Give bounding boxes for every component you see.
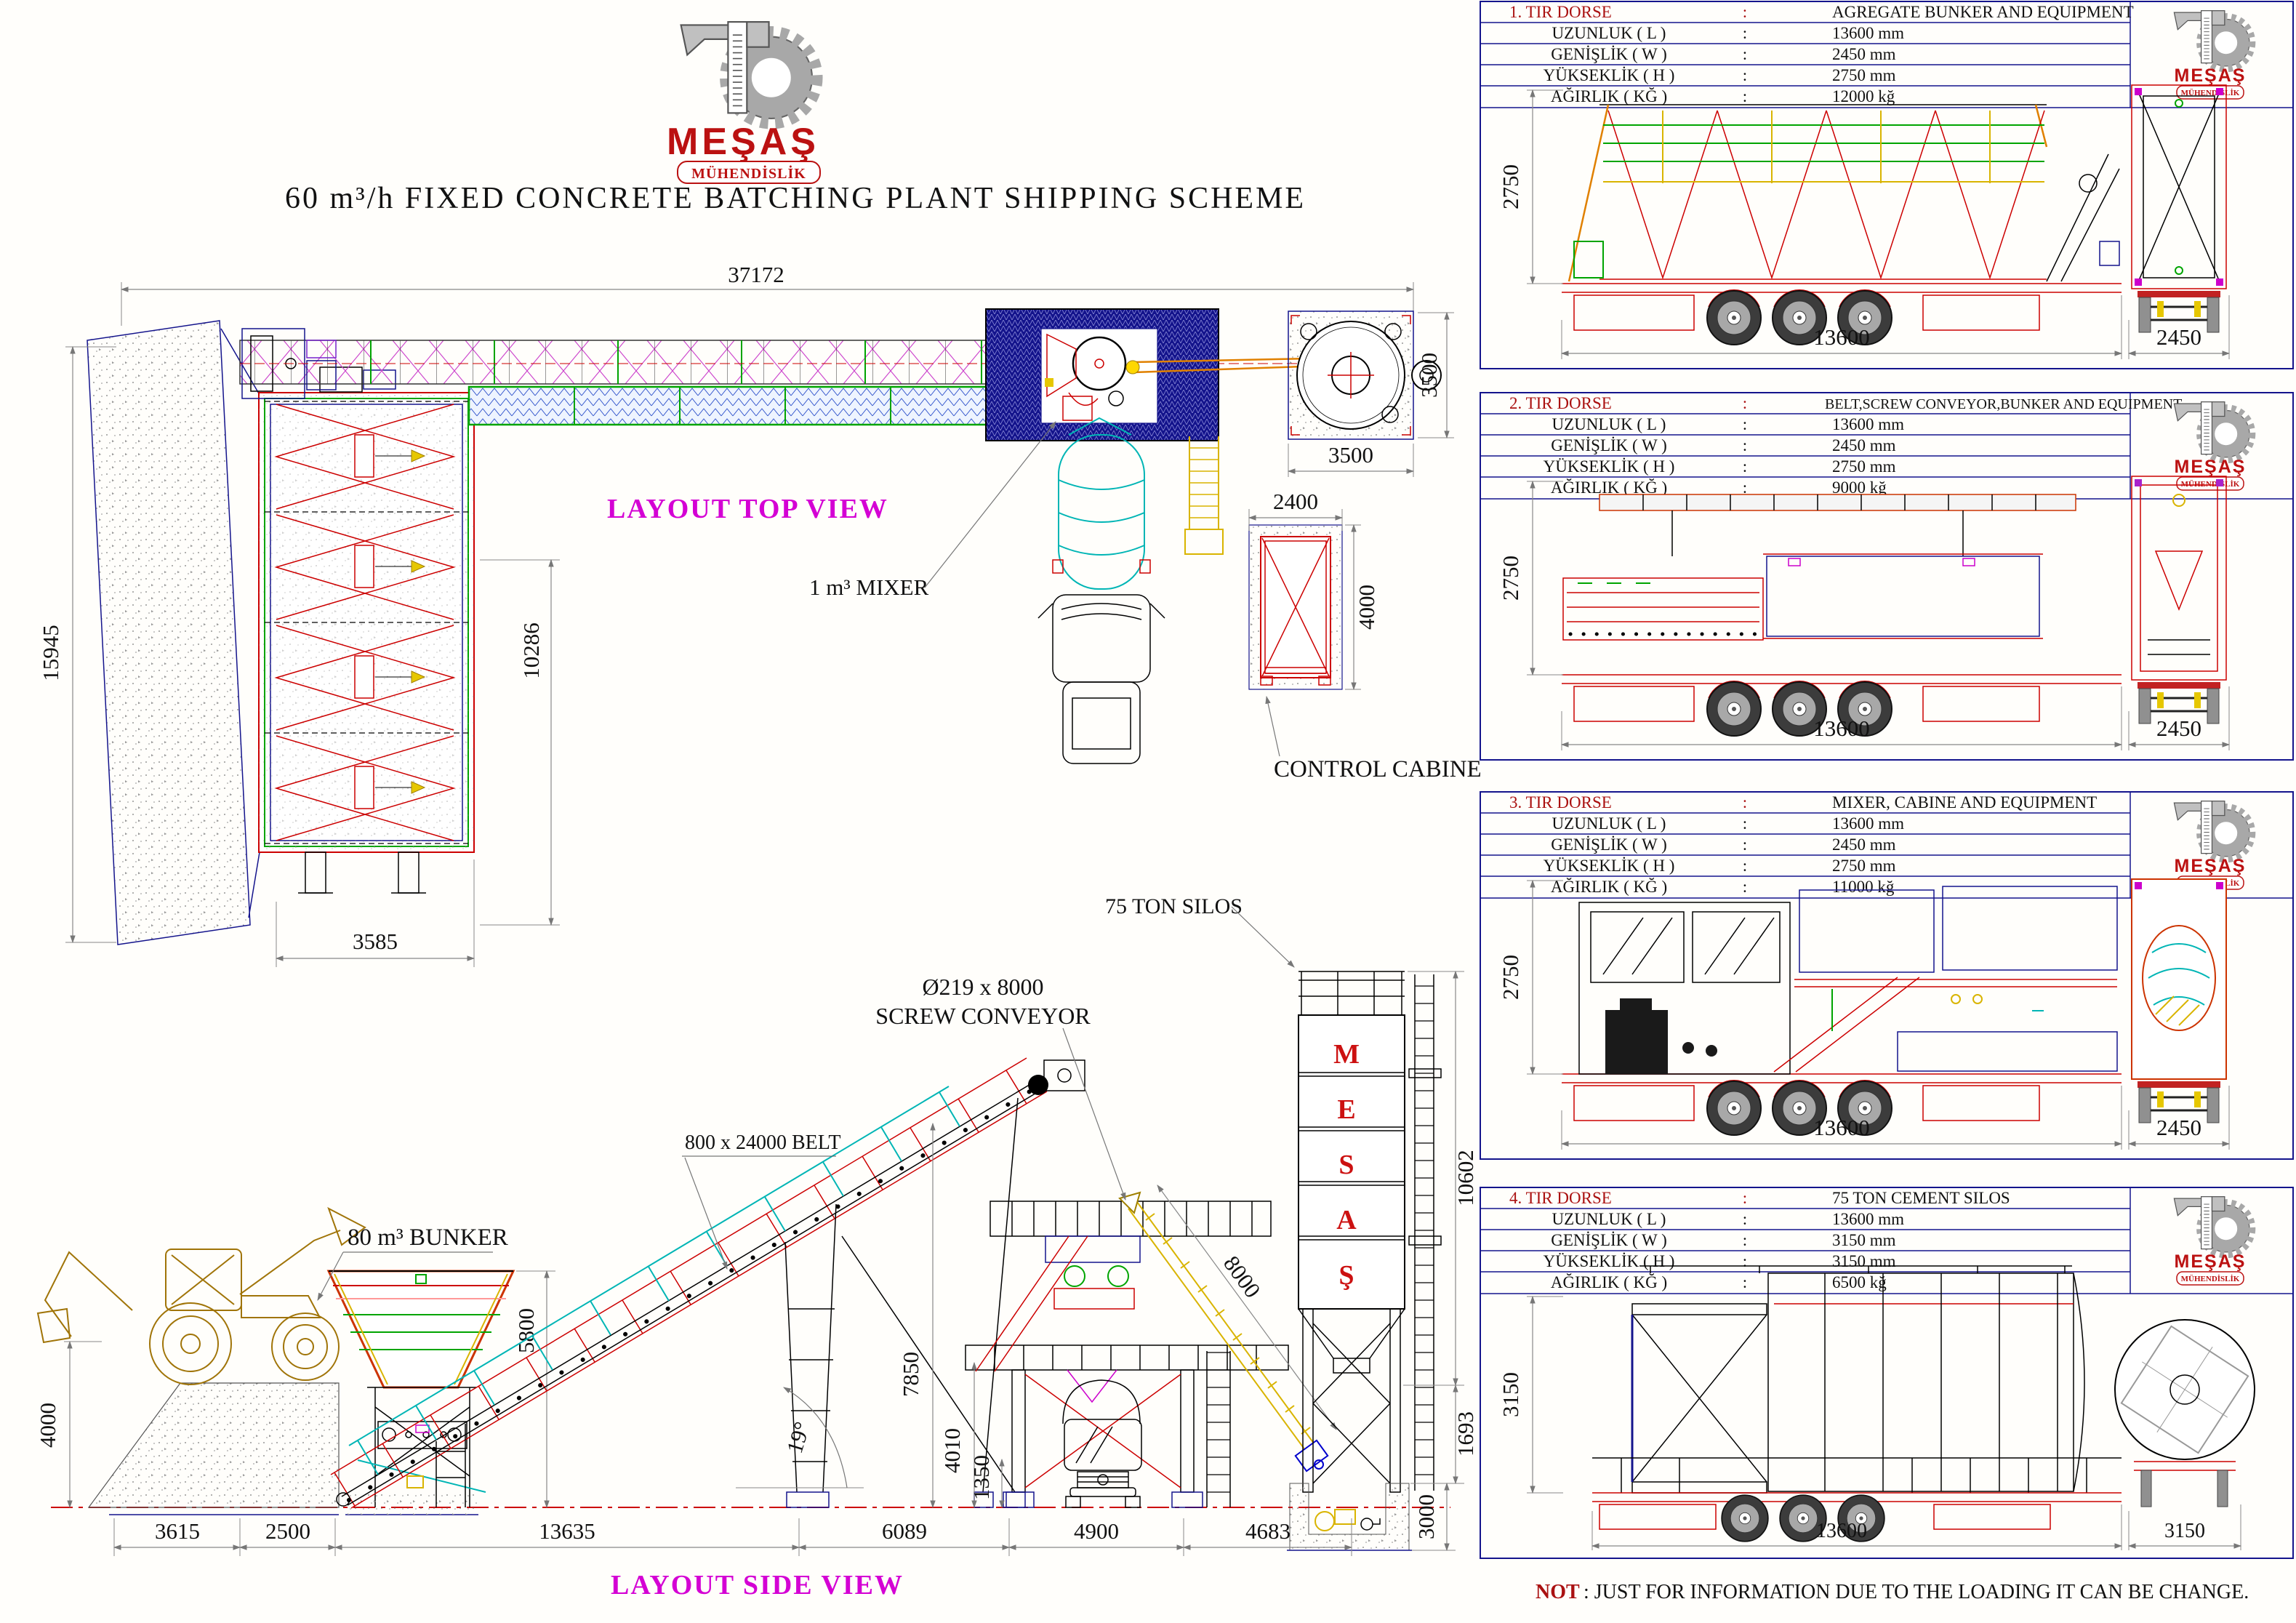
brand-subtitle: MÜHENDİSLİK	[691, 164, 806, 182]
dim-footing-height: 1350	[968, 1455, 994, 1500]
row-value: 2450 mm	[1832, 436, 1896, 454]
colon: :	[1743, 1189, 1747, 1207]
top-view-label: LAYOUT TOP VIEW	[607, 494, 888, 524]
truck3-dim-length: 13600	[1813, 1115, 1870, 1140]
row-label: GENİŞLİK ( W )	[1551, 1231, 1666, 1249]
truck2-cargo: BELT,SCREW CONVEYOR,BUNKER AND EQUIPMENT	[1825, 396, 2182, 412]
truck1-dim-height: 2750	[1498, 164, 1523, 209]
brand-name: MEŞAŞ	[2175, 856, 2247, 876]
truck2-no: 2. TIR DORSE	[1509, 394, 1612, 412]
dim-belt-angle: 19°	[782, 1419, 815, 1456]
truck1-cargo: AGREGATE BUNKER AND EQUIPMENT	[1832, 3, 2134, 21]
colon: :	[1743, 1231, 1747, 1249]
colon: :	[1743, 857, 1747, 875]
truck1-dim-width: 2450	[2156, 324, 2201, 350]
dim-silo-span: 4683	[1245, 1518, 1291, 1544]
silo-letter-s: S	[1338, 1150, 1354, 1180]
truck4-no: 4. TIR DORSE	[1509, 1189, 1612, 1207]
dim-cabine-depth: 4000	[1354, 585, 1379, 630]
dim-platform-height: 7850	[898, 1352, 923, 1397]
colon: :	[1743, 1273, 1747, 1291]
colon: :	[1743, 3, 1747, 21]
row-label: GENİŞLİK ( W )	[1551, 45, 1666, 63]
truck3-dim-height: 2750	[1498, 955, 1523, 1000]
dim-silo-side: 3500	[1416, 353, 1442, 398]
footer-note: NOT : JUST FOR INFORMATION DUE TO THE LO…	[1536, 1581, 2249, 1603]
row-label: YÜKSEKLİK ( H )	[1544, 66, 1675, 84]
dim-foundation-depth: 3000	[1413, 1494, 1439, 1539]
screw-label-line2: SCREW CONVEYOR	[875, 1003, 1091, 1029]
dim-screw-length: 8000	[1219, 1251, 1266, 1302]
truck-panel-3: 3. TIR DORSE : MIXER, CABINE AND EQUIPME…	[1480, 792, 2293, 1159]
bunker-label: 80 m³ BUNKER	[348, 1225, 508, 1251]
mixer-platform-plan	[986, 309, 1219, 441]
belt-label: 800 x 24000 BELT	[685, 1131, 840, 1154]
aggregate-bunker-plan	[259, 367, 474, 893]
header: MEŞAŞ MÜHENDİSLİK 60 m³/h FIXED CONCRETE…	[285, 22, 1306, 215]
truck1-no: 1. TIR DORSE	[1509, 3, 1612, 21]
truck4-cargo: 75 TON CEMENT SILOS	[1832, 1189, 2010, 1207]
truck2-dim-height: 2750	[1498, 556, 1523, 601]
brand-name: MEŞAŞ	[2175, 457, 2247, 477]
dim-truck-clearance: 4010	[939, 1428, 965, 1473]
truck2-dim-width: 2450	[2156, 716, 2201, 741]
page-title: 60 m³/h FIXED CONCRETE BATCHING PLANT SH…	[285, 182, 1306, 215]
side-view-label: LAYOUT SIDE VIEW	[611, 1570, 904, 1600]
dim-silo-cone: 1693	[1453, 1411, 1478, 1456]
walkway-plan	[469, 387, 987, 425]
row-label: UZUNLUK ( L )	[1552, 24, 1666, 42]
row-label: AĞIRLIK ( KĞ )	[1551, 1273, 1667, 1291]
colon: :	[1743, 814, 1747, 833]
note-text: : JUST FOR INFORMATION DUE TO THE LOADIN…	[1583, 1581, 2249, 1603]
dim-bunker-height: 5800	[513, 1308, 539, 1353]
row-value: 13600 mm	[1832, 24, 1904, 42]
drawing-sheet: MEŞAŞ MÜHENDİSLİK 60 m³/h FIXED CONCRETE…	[0, 0, 2296, 1623]
retaining-wall	[87, 321, 250, 945]
dim-bunker-width: 3585	[353, 929, 398, 954]
control-cabine-label: CONTROL CABINE	[1274, 756, 1482, 782]
row-label: UZUNLUK ( L )	[1552, 415, 1666, 433]
row-value: 12000 kğ	[1832, 87, 1895, 105]
row-label: GENİŞLİK ( W )	[1551, 835, 1666, 854]
row-value: 2750 mm	[1832, 857, 1896, 875]
truck3-dim-width: 2450	[2156, 1115, 2201, 1140]
row-value: 2750 mm	[1832, 457, 1896, 476]
truck-panel-4: 4. TIR DORSE : 75 TON CEMENT SILOS UZUNL…	[1480, 1187, 2293, 1558]
dim-leg-span: 4900	[1074, 1518, 1119, 1544]
truck3-no: 3. TIR DORSE	[1509, 793, 1612, 811]
colon: :	[1743, 436, 1747, 454]
mixer-truck-plan	[1038, 418, 1165, 764]
row-value: 3150 mm	[1832, 1231, 1896, 1249]
dim-belt-span: 13635	[539, 1518, 595, 1544]
row-value: 11000 kğ	[1832, 878, 1895, 896]
mixer-plant-side	[966, 1201, 1288, 1507]
silo-letter-e: E	[1337, 1094, 1355, 1125]
row-value: 13600 mm	[1832, 1210, 1904, 1228]
colon: :	[1743, 66, 1747, 84]
truck4-dim-width: 3150	[2164, 1520, 2205, 1542]
colon: :	[1743, 45, 1747, 63]
silos-label: 75 TON SILOS	[1105, 894, 1243, 918]
colon: :	[1743, 394, 1747, 412]
brand-subtitle: MÜHENDİSLİK	[2181, 479, 2240, 489]
dim-bunker-length: 10286	[518, 622, 544, 679]
note-prefix: NOT	[1536, 1581, 1580, 1603]
row-label: YÜKSEKLİK ( H )	[1544, 457, 1675, 476]
row-value: 2450 mm	[1832, 45, 1896, 63]
truck2-dim-length: 13600	[1813, 716, 1870, 741]
row-value: 13600 mm	[1832, 814, 1904, 833]
dim-cabine-width: 2400	[1273, 489, 1318, 514]
row-value: 6500 kğ	[1832, 1273, 1887, 1291]
dim-silo-front: 3500	[1328, 442, 1373, 468]
truck4-drawing: 3150 13600 3150	[1498, 1266, 2255, 1550]
backhoe-loader	[38, 1209, 365, 1384]
mixer-label: 1 m³ MIXER	[809, 574, 929, 600]
mesas-logo-small: MEŞAŞ MÜHENDİSLİK	[2174, 1197, 2252, 1285]
brand-name: MEŞAŞ	[667, 121, 819, 163]
truck2-drawing: 2750 13600 2450	[1498, 476, 2229, 750]
mesas-logo-icon	[681, 22, 817, 123]
mesas-logo-small: MEŞAŞ MÜHENDİSLİK	[2174, 11, 2252, 99]
mesas-logo-small: MEŞAŞ MÜHENDİSLİK	[2174, 402, 2252, 490]
truck1-drawing: 2750 13600 2450	[1498, 85, 2229, 359]
access-ladder-plan	[1185, 436, 1223, 554]
row-value: 3150 mm	[1832, 1252, 1896, 1270]
layout-top-view: 37172 15945 10286	[38, 262, 1482, 967]
truck3-drawing: 2750 13600 2450	[1498, 879, 2229, 1150]
row-label: YÜKSEKLİK ( H )	[1544, 857, 1675, 875]
row-label: UZUNLUK ( L )	[1552, 814, 1666, 833]
colon: :	[1743, 1210, 1747, 1228]
dim-total-width: 37172	[728, 262, 784, 287]
colon: :	[1743, 24, 1747, 42]
silo-letter-m: M	[1333, 1039, 1360, 1070]
row-label: UZUNLUK ( L )	[1552, 1210, 1666, 1228]
mesas-logo-small: MEŞAŞ MÜHENDİSLİK	[2174, 801, 2252, 889]
row-label: AĞIRLIK ( KĞ )	[1551, 878, 1667, 896]
colon: :	[1743, 87, 1747, 105]
row-value: 13600 mm	[1832, 415, 1904, 433]
row-label: GENİŞLİK ( W )	[1551, 436, 1666, 454]
dim-ramp-height: 4000	[35, 1403, 60, 1448]
truck-panel-2: 2. TIR DORSE : BELT,SCREW CONVEYOR,BUNKE…	[1480, 393, 2293, 760]
colon: :	[1743, 878, 1747, 896]
loading-ramp	[89, 1383, 339, 1507]
dim-mid-span: 6089	[882, 1518, 927, 1544]
row-label: AĞIRLIK ( KĞ )	[1551, 87, 1667, 105]
silo-letter-a: A	[1336, 1205, 1357, 1235]
dim-silo-height: 10602	[1453, 1150, 1478, 1206]
row-label: YÜKSEKLİK ( H )	[1544, 1252, 1675, 1270]
dim-feeder-gap: 2500	[265, 1518, 310, 1544]
colon: :	[1743, 793, 1747, 811]
truck4-dim-length: 13600	[1816, 1520, 1867, 1542]
brand-name: MEŞAŞ	[2175, 1251, 2247, 1272]
cad-drawing: MEŞAŞ MÜHENDİSLİK 60 m³/h FIXED CONCRETE…	[0, 0, 2296, 1623]
control-cabine-plan	[1249, 525, 1342, 689]
screw-label-line1: Ø219 x 8000	[922, 974, 1043, 1000]
dim-ramp-length: 3615	[155, 1518, 200, 1544]
colon: :	[1743, 835, 1747, 854]
screw-inlet	[1126, 361, 1139, 374]
truck3-cargo: MIXER, CABINE AND EQUIPMENT	[1832, 793, 2097, 811]
colon: :	[1743, 1252, 1747, 1270]
platform-marker	[1045, 378, 1053, 387]
bunker-side	[329, 1271, 513, 1515]
truck1-dim-length: 13600	[1813, 324, 1870, 350]
truck4-dim-height: 3150	[1498, 1372, 1523, 1417]
brand-name: MEŞAŞ	[2175, 65, 2247, 86]
truck-panel-1: 1. TIR DORSE : AGREGATE BUNKER AND EQUIP…	[1480, 1, 2293, 369]
colon: :	[1743, 457, 1747, 476]
colon: :	[1743, 415, 1747, 433]
row-value: 2450 mm	[1832, 835, 1896, 854]
row-value: 2750 mm	[1832, 66, 1896, 84]
silo-letter-s2: Ş	[1338, 1260, 1354, 1291]
brand-subtitle: MÜHENDİSLİK	[2181, 1274, 2240, 1283]
layout-side-view: 4000 5800	[35, 894, 1478, 1600]
dim-left-height: 15945	[38, 625, 63, 681]
